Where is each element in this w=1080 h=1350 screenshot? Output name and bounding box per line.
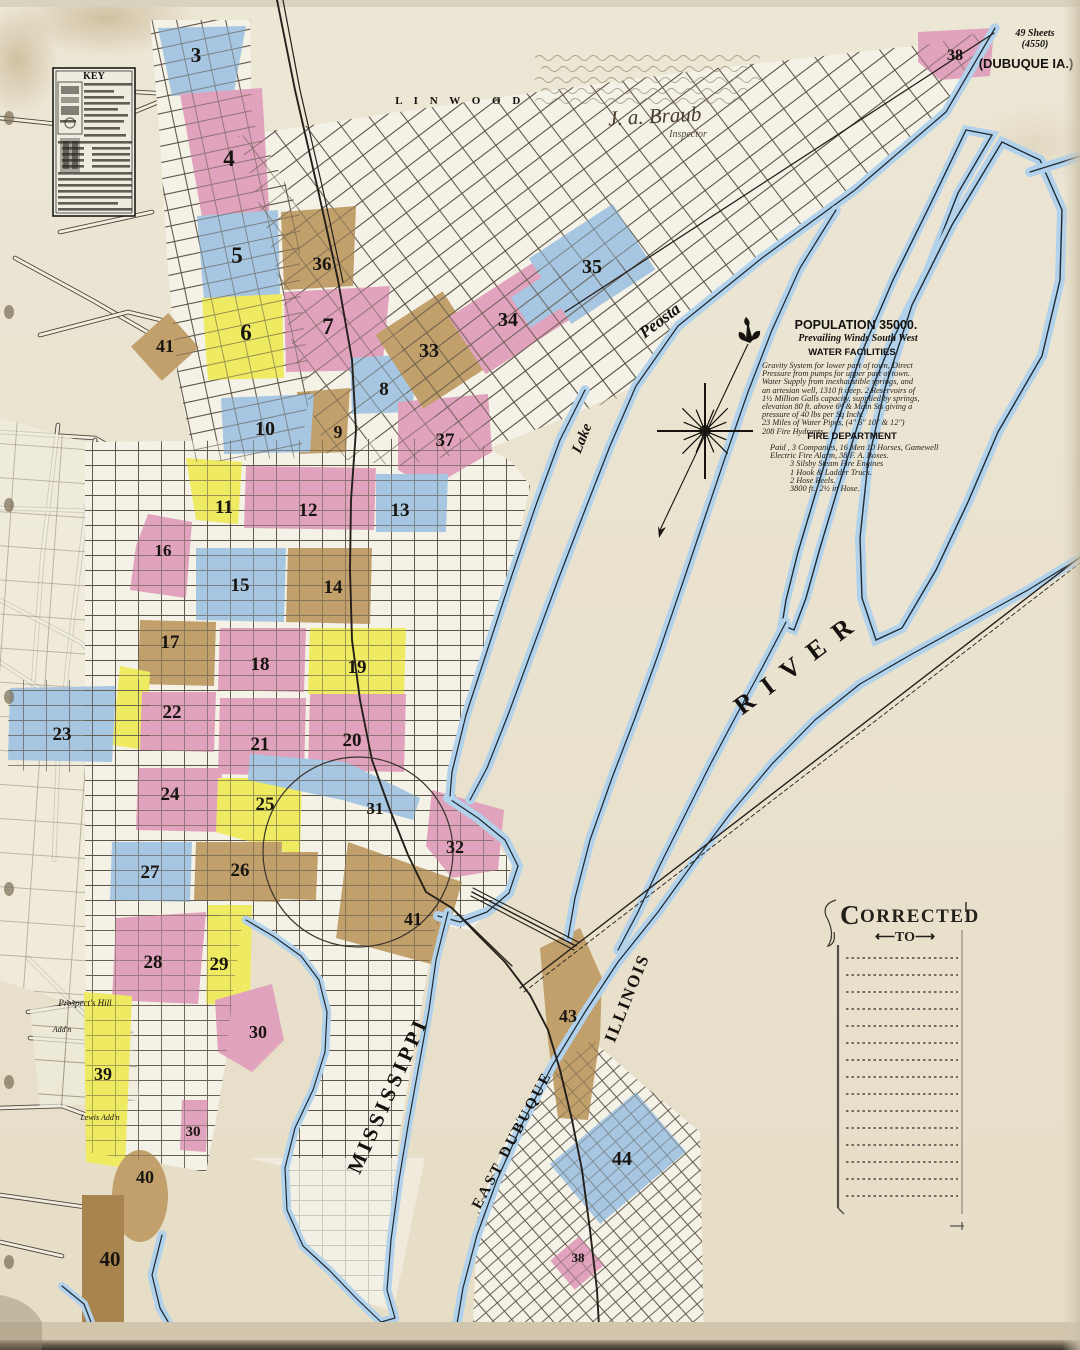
svg-text:40: 40 bbox=[136, 1167, 154, 1187]
svg-text:34: 34 bbox=[498, 309, 518, 331]
svg-text:8: 8 bbox=[379, 379, 389, 400]
svg-text:7: 7 bbox=[322, 314, 334, 339]
svg-text:3 Silsby Steam Fire Engines: 3 Silsby Steam Fire Engines bbox=[789, 459, 883, 468]
svg-text:6: 6 bbox=[240, 320, 252, 345]
svg-text:40: 40 bbox=[100, 1247, 121, 1271]
svg-text:38: 38 bbox=[572, 1250, 586, 1265]
svg-text:32: 32 bbox=[446, 837, 464, 857]
svg-text:49 Sheets: 49 Sheets bbox=[1014, 28, 1054, 39]
svg-text:44: 44 bbox=[612, 1148, 632, 1170]
svg-text:23 Miles of Water Pipes, (4″ 6: 23 Miles of Water Pipes, (4″ 6″ 10″ & 12… bbox=[762, 418, 905, 427]
svg-text:(DUBUQUE IA.): (DUBUQUE IA.) bbox=[979, 56, 1074, 71]
svg-text:Lewis Add'n: Lewis Add'n bbox=[79, 1113, 119, 1122]
svg-text:FIRE DEPARTMENT: FIRE DEPARTMENT bbox=[807, 431, 897, 442]
svg-text:Prospect's Hill: Prospect's Hill bbox=[57, 998, 112, 1008]
svg-text:30: 30 bbox=[249, 1022, 267, 1042]
svg-text:36: 36 bbox=[313, 254, 332, 275]
svg-text:20: 20 bbox=[343, 730, 362, 751]
svg-text:4: 4 bbox=[223, 146, 235, 171]
svg-text:J. a. Braub: J. a. Braub bbox=[607, 102, 701, 131]
svg-text:5: 5 bbox=[231, 243, 243, 268]
svg-text:25: 25 bbox=[256, 794, 275, 815]
svg-text:38: 38 bbox=[947, 47, 963, 64]
svg-text:9: 9 bbox=[334, 422, 343, 442]
svg-text:12: 12 bbox=[299, 500, 318, 521]
svg-text:C: C bbox=[840, 900, 860, 930]
svg-text:29: 29 bbox=[210, 954, 229, 975]
svg-text:18: 18 bbox=[251, 654, 270, 675]
svg-text:21: 21 bbox=[251, 734, 270, 755]
svg-text:13: 13 bbox=[391, 500, 410, 521]
svg-text:43: 43 bbox=[559, 1006, 577, 1026]
svg-text:41: 41 bbox=[156, 336, 174, 356]
svg-text:33: 33 bbox=[419, 340, 439, 362]
svg-text:37: 37 bbox=[436, 430, 456, 451]
svg-text:Inspector: Inspector bbox=[668, 129, 707, 140]
svg-text:3800 ft., 2½ in Hose.: 3800 ft., 2½ in Hose. bbox=[789, 484, 860, 493]
svg-text:ORRECTED: ORRECTED bbox=[860, 906, 980, 927]
svg-text:(4550): (4550) bbox=[1022, 39, 1049, 50]
svg-text:Prevailing Winds South We: Prevailing Winds South West bbox=[798, 333, 919, 344]
svg-text:16: 16 bbox=[155, 541, 172, 560]
svg-text:3: 3 bbox=[191, 43, 202, 67]
svg-text:41: 41 bbox=[404, 909, 422, 929]
svg-text:39: 39 bbox=[94, 1064, 112, 1084]
svg-text:17: 17 bbox=[161, 632, 181, 653]
svg-text:POPULATION 35000.: POPULATION 35000. bbox=[795, 318, 918, 332]
svg-text:19: 19 bbox=[348, 657, 367, 678]
svg-text:15: 15 bbox=[231, 575, 250, 596]
svg-text:14: 14 bbox=[324, 577, 344, 598]
svg-text:KEY: KEY bbox=[83, 71, 105, 82]
svg-text:L I N W O O D: L I N W O O D bbox=[395, 95, 525, 107]
svg-text:⟵TO⟶: ⟵TO⟶ bbox=[875, 930, 935, 945]
svg-text:WATER FACILITIES: WATER FACILITIES bbox=[808, 347, 895, 358]
svg-text:22: 22 bbox=[163, 702, 182, 723]
svg-text:23: 23 bbox=[53, 724, 72, 745]
svg-text:24: 24 bbox=[161, 784, 181, 805]
svg-text:11: 11 bbox=[215, 497, 233, 518]
svg-text:26: 26 bbox=[231, 860, 250, 881]
svg-text:Water Supply from inexhaustibl: Water Supply from inexhaustible springs,… bbox=[762, 377, 914, 386]
svg-text:35: 35 bbox=[582, 256, 602, 278]
svg-text:31: 31 bbox=[367, 799, 384, 818]
svg-text:30: 30 bbox=[186, 1124, 201, 1140]
svg-text:27: 27 bbox=[141, 862, 161, 883]
svg-text:28: 28 bbox=[144, 952, 163, 973]
svg-text:Add'n: Add'n bbox=[52, 1025, 72, 1034]
svg-text:10: 10 bbox=[255, 418, 275, 440]
